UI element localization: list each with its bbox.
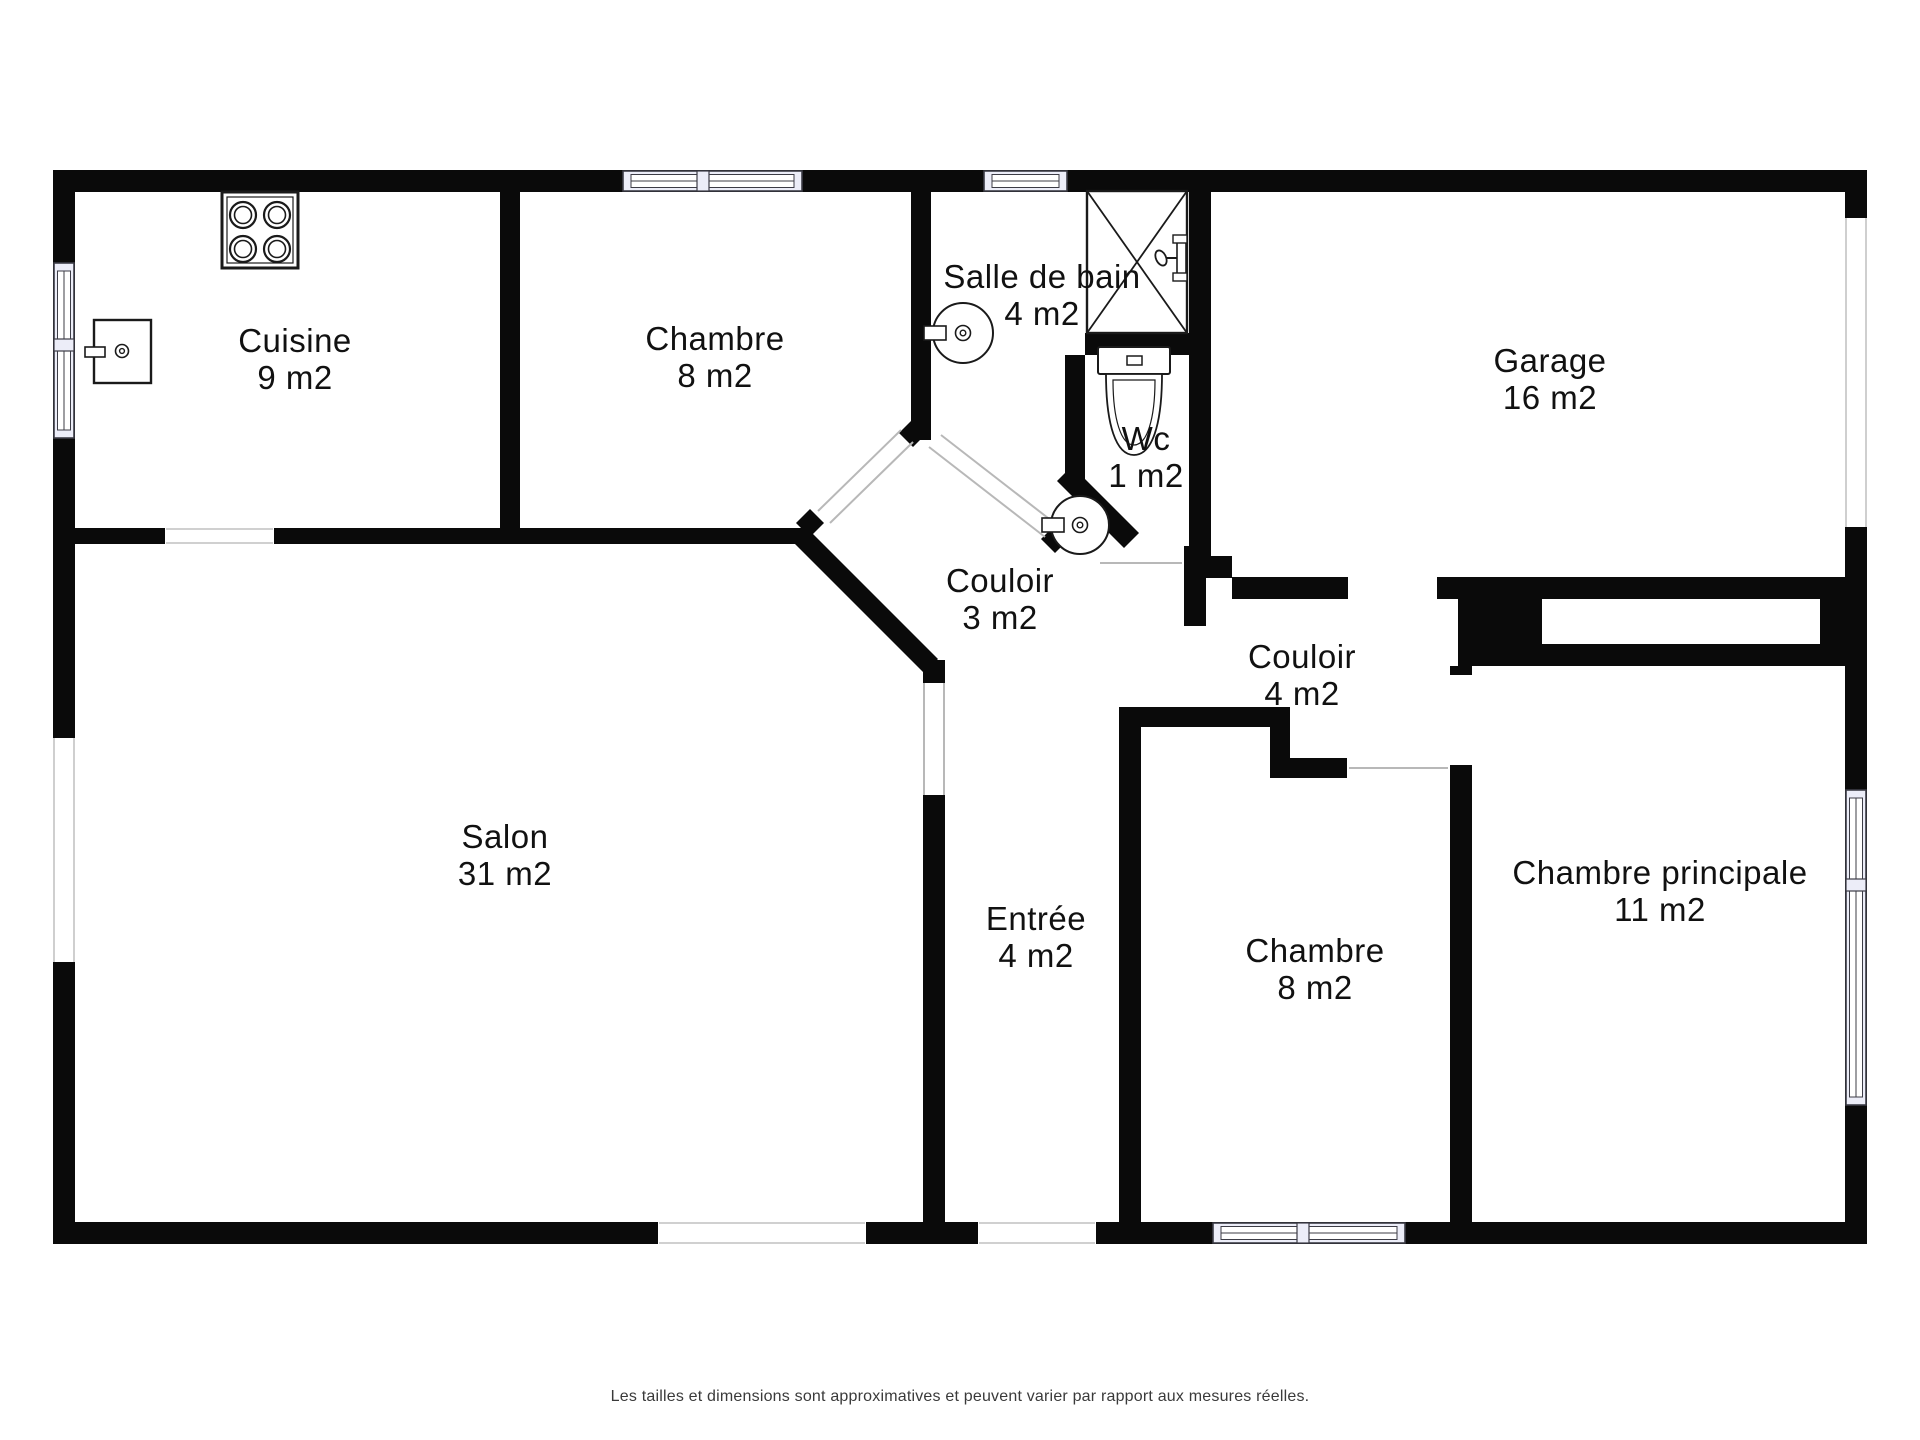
window-icon [984,171,1067,191]
door-passage-line [830,442,913,523]
stove-icon [222,192,298,268]
wall [1206,556,1232,578]
bathroom-sink-icon [924,303,993,363]
disclaimer-text: Les tailles et dimensions sont approxima… [0,1388,1920,1406]
wall [1450,765,1472,1222]
room-label-salon: Salon [462,818,549,855]
room-label-couloir-4: Couloir [1248,638,1356,675]
room-label-salle-de-bain: Salle de bain [943,258,1140,295]
kitchen-sink-icon [85,320,151,383]
wall-opening [978,1222,1096,1244]
room-area-couloir-4: 4 m2 [1264,675,1339,712]
door-passage-line [929,447,1045,537]
room-area-cuisine: 9 m2 [257,359,332,396]
wall [1290,758,1347,778]
room-area-entree: 4 m2 [998,937,1073,974]
room-area-couloir-3: 3 m2 [962,599,1037,636]
room-area-chambre-principale: 11 m2 [1614,891,1706,928]
room-area-garage: 16 m2 [1503,379,1597,416]
window-mullion [1846,879,1866,891]
door-passage-line [941,435,1057,525]
window-icon [54,263,74,438]
wall-opening [53,738,75,962]
window-icon [1213,1223,1405,1243]
room-label-chambre-bas: Chambre [1245,932,1384,969]
wall [1437,577,1845,599]
wall [274,528,807,544]
wall-diagonal [793,528,938,673]
fixtures-layer [85,191,1187,554]
wall [1119,707,1141,1222]
room-area-wc: 1 m2 [1108,457,1183,494]
window-icon [623,171,802,191]
room-area-chambre-bas: 8 m2 [1277,969,1352,1006]
wall-opening [1845,218,1867,527]
wall [1820,599,1845,644]
room-label-wc: Wc [1122,420,1171,457]
wall [53,1222,1867,1244]
wall [1232,577,1348,599]
wall [1184,546,1206,626]
room-area-salon: 31 m2 [458,855,552,892]
floorplan-drawing: Cuisine9 m2Chambre8 m2Salle de bain4 m2G… [0,0,1920,1440]
room-labels-layer: Cuisine9 m2Chambre8 m2Salle de bain4 m2G… [238,258,1807,1006]
wall [911,192,931,440]
room-label-chambre-haut: Chambre [645,320,784,357]
wall [1270,727,1290,778]
wall-opening [658,1222,866,1244]
window-mullion [54,339,74,351]
wall [500,192,520,543]
room-label-cuisine: Cuisine [238,322,352,359]
room-area-chambre-haut: 8 m2 [677,357,752,394]
wall [1542,644,1845,666]
window-icon [1846,790,1866,1105]
room-label-entree: Entrée [986,900,1086,937]
window-mullion [697,171,709,191]
room-label-couloir-3: Couloir [946,562,1054,599]
wall [923,795,945,1222]
wall [1458,599,1542,666]
door-passage-line [818,430,901,511]
wall [1189,192,1211,578]
wall [53,170,1867,192]
room-label-chambre-principale: Chambre principale [1512,854,1807,891]
floorplan-page: Cuisine9 m2Chambre8 m2Salle de bain4 m2G… [0,0,1920,1440]
wall [1065,355,1085,480]
window-mullion [1297,1223,1309,1243]
room-area-salle-de-bain: 4 m2 [1004,295,1079,332]
room-label-garage: Garage [1493,342,1606,379]
wall [75,528,165,544]
wall [1450,666,1472,675]
